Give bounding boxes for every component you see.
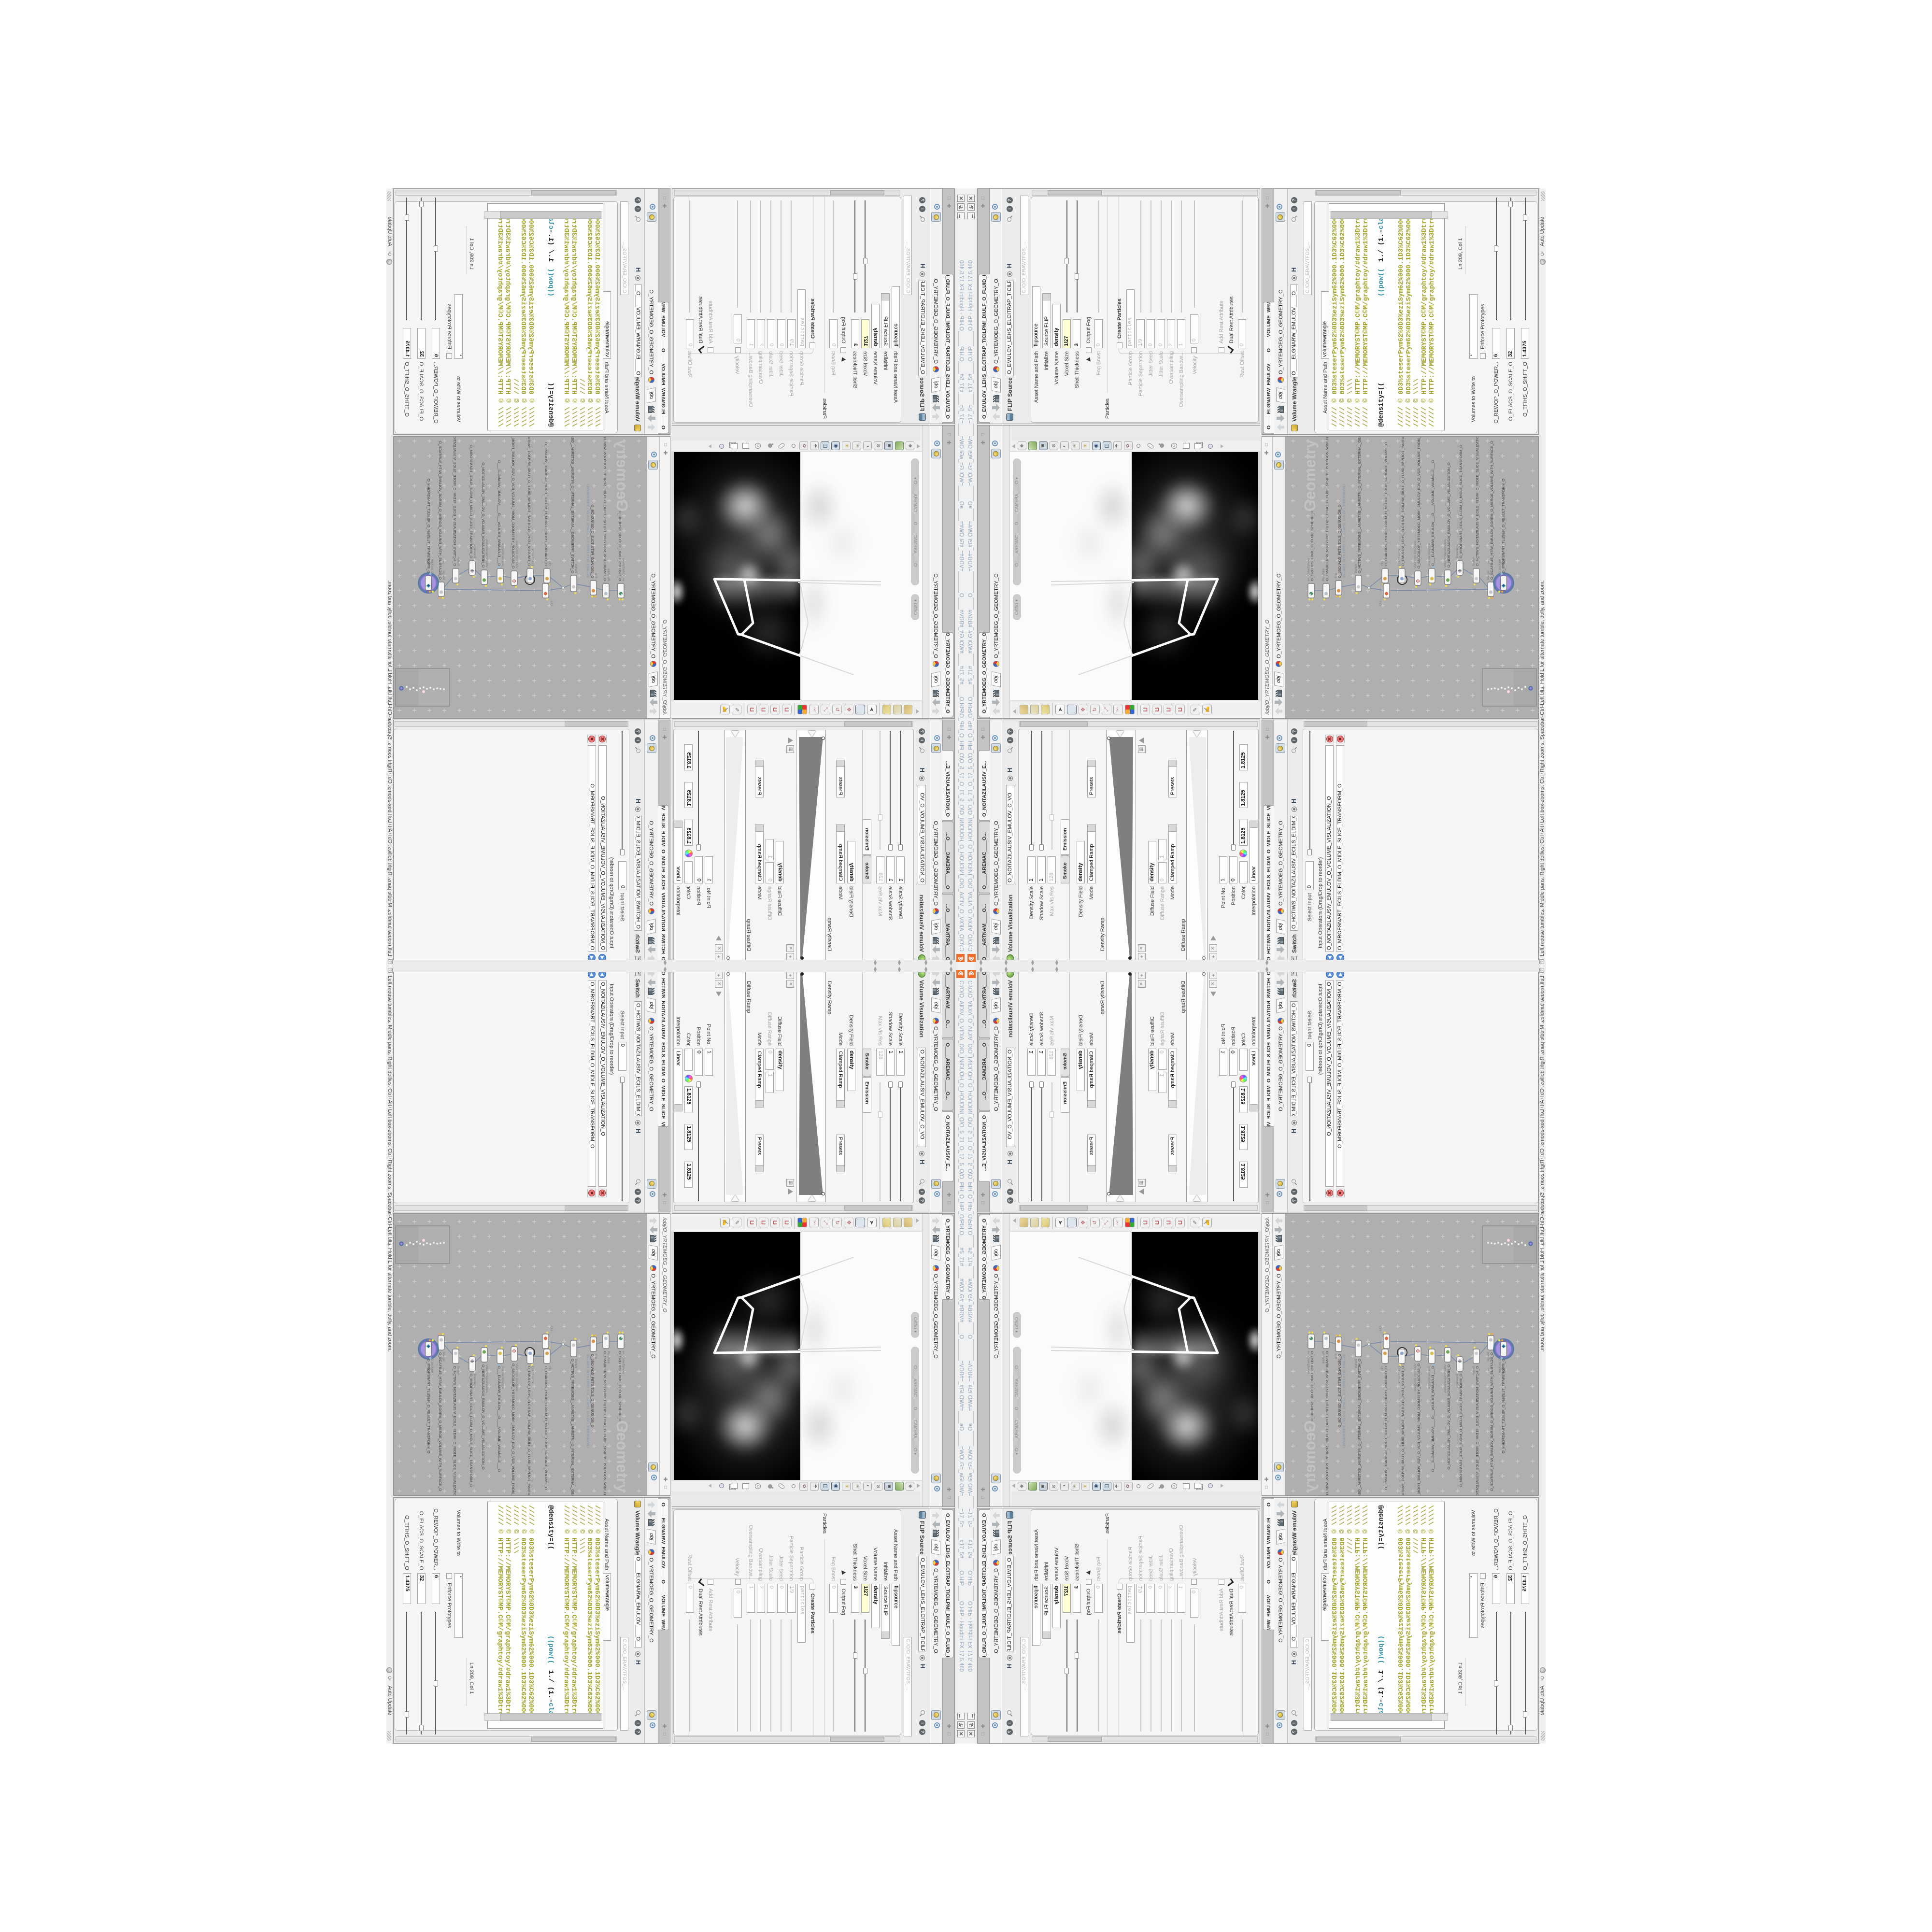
svg-text:O_EREHPS_EBUC_O_CUBE_SPHERE_O: O_EREHPS_EBUC_O_CUBE_SPHERE_O bbox=[1310, 1351, 1314, 1421]
svg-text:JBO.WD3_PETS.TRFOLS_O_GEM/SS_O: JBO.WD3_PETS.TRFOLS_O_GEM/SS_O.SLDPT.STE… bbox=[586, 484, 589, 579]
svg-text:O_JBO.WD3_PETS.TDLS_O_GENUS(OB: O_JBO.WD3_PETS.TDLS_O_GENUS(OB_D bbox=[590, 504, 595, 578]
svg-text:PolyWire: PolyWire bbox=[607, 568, 610, 581]
svg-text:O_SNOGILOP_YRTEMOEG_MORF_EMULO: O_SNOGILOP_YRTEMOEG_MORF_EMULOV_BDV_O_VD… bbox=[1417, 437, 1421, 568]
svg-text:Clip: Clip bbox=[1379, 600, 1382, 606]
svg-text:O_SNOGILOP_YRTEMOEG_MORF_EMULO: O_SNOGILOP_YRTEMOEG_MORF_EMULOV_BDV_O_VD… bbox=[511, 1364, 515, 1495]
svg-text:O_HCTIWS_NOITAZILAUSIV_ECILS_E: O_HCTIWS_NOITAZILAUSIV_ECILS_ELDIM_O_MID… bbox=[1475, 437, 1479, 566]
svg-text:Merge: Merge bbox=[442, 570, 445, 580]
svg-text:Transform: Transform bbox=[473, 544, 476, 558]
svg-text:O_ECAFRUS_HTIW_EMULOV_EGREM_O_: O_ECAFRUS_HTIW_EMULOV_EGREM_O_MERGE_VOLU… bbox=[1490, 1352, 1494, 1491]
svg-text:O_SNOGILOP_YRTEMOEG_MORF_EMULO: O_SNOGILOP_YRTEMOEG_MORF_EMULOV_BDV_O_VD… bbox=[511, 437, 515, 568]
svg-text:O_EMARFERIW_NOGYLOP_EREHPS_EBU: O_EMARFERIW_NOGYLOP_EREHPS_EBUC_O_CUBE_S… bbox=[1325, 1351, 1329, 1495]
svg-text:O_ECAFRUS_HTIW_EMULOV_EGREM_O_: O_ECAFRUS_HTIW_EMULOV_EGREM_O_MERGE_VOLU… bbox=[438, 1352, 442, 1491]
svg-text:Volume Wrangle: Volume Wrangle bbox=[501, 543, 504, 566]
svg-text:Clip: Clip bbox=[1379, 1326, 1382, 1332]
svg-text:Geometry: Geometry bbox=[1301, 440, 1319, 512]
svg-text:O_HCTIWS_YRTEMOEG_LANRETXE_LAN: O_HCTIWS_YRTEMOEG_LANRETXE_LANRETNI_O_IN… bbox=[1357, 1359, 1362, 1495]
svg-text:O_MROFSNART_ECILS_ELDIM_O_MIDL: O_MROFSNART_ECILS_ELDIM_O_MIDLE_SLICE_TR… bbox=[469, 445, 473, 558]
svg-text:O___ELGNARW_EMULOV___O____VOLU: O___ELGNARW_EMULOV___O____VOLUME_WRANGLE… bbox=[497, 1366, 501, 1472]
svg-text:O_HCTIWS_NOITAZILAUSIV_ECILS_E: O_HCTIWS_NOITAZILAUSIV_ECILS_ELDIM_O_MID… bbox=[453, 1366, 457, 1495]
svg-text:O_NOITAZILAUSIV_EMULOV_O_VOLUM: O_NOITAZILAUSIV_EMULOV_O_VOLUME_VISUALIZ… bbox=[1447, 1364, 1451, 1469]
svg-text:O_EREHPS_EBUC_O_CUBE_SPHERE_O: O_EREHPS_EBUC_O_CUBE_SPHERE_O bbox=[1310, 511, 1314, 581]
svg-text:Volume Wrangle: Volume Wrangle bbox=[501, 1366, 504, 1389]
svg-text:O_EMARFERIW_NOGYLOP_EREHPS_EBU: O_EMARFERIW_NOGYLOP_EREHPS_EBUC_O_CUBE_S… bbox=[603, 1351, 607, 1495]
svg-text:Clip: Clip bbox=[548, 1366, 551, 1372]
svg-text:Geometry: Geometry bbox=[1301, 1421, 1319, 1493]
svg-text:O_JBO.WD3_PETS.TDLS_O_GENUS(OB: O_JBO.WD3_PETS.TDLS_O_GENUS(OB_D bbox=[1337, 504, 1342, 578]
svg-text:VolumeVisualization: VolumeVisualization bbox=[485, 1364, 488, 1392]
svg-text:O_EMULOV_LEHS_ELCITRAP_TICILPM: O_EMULOV_LEHS_ELCITRAP_TICILPMI_DIULF_O_… bbox=[527, 437, 531, 566]
svg-text:VDB from Polygons: VDB from Polygons bbox=[515, 541, 518, 568]
svg-text:JBO.WD3_PETS.TRFOLS_O_GEM/SS_O: JBO.WD3_PETS.TRFOLS_O_GEM/SS_O.SLDPT.STE… bbox=[1343, 1353, 1346, 1448]
svg-text:O_HCTIWS_YRTEMOEG_LANRETXE_LAN: O_HCTIWS_YRTEMOEG_LANRETXE_LANRETNI_O_IN… bbox=[570, 437, 575, 573]
svg-text:O_EMARFERIW_NOGYLOP_EREHPS_EBU: O_EMARFERIW_NOGYLOP_EREHPS_EBUC_O_CUBE_S… bbox=[1325, 437, 1329, 581]
svg-text:O_ECAFRUS_PORD_EGREM_O_MERGE_D: O_ECAFRUS_PORD_EGREM_O_MERGE_DROP_SURFAC… bbox=[1384, 1366, 1388, 1490]
svg-text:JBO.WD3_PETS.TRFOLS_O_GEM/SS_O: JBO.WD3_PETS.TRFOLS_O_GEM/SS_O.SLDPT.STE… bbox=[1343, 484, 1346, 579]
svg-text:PolyWire: PolyWire bbox=[607, 1351, 610, 1364]
svg-text:Switch: Switch bbox=[456, 1366, 460, 1376]
svg-text:O_MROFSNART_TLUSER_O_RESULT_TR: O_MROFSNART_TLUSER_O_RESULT_TRANSFORM_O bbox=[1501, 479, 1506, 573]
svg-text:O_NOITAZILAUSIV_EMULOV_O_VOLUM: O_NOITAZILAUSIV_EMULOV_O_VOLUME_VISUALIZ… bbox=[481, 463, 485, 568]
svg-text:Switch: Switch bbox=[574, 564, 578, 573]
svg-text:Merge: Merge bbox=[442, 1352, 445, 1362]
svg-text:O_NOITAZILAUSIV_EMULOV_O_VOLUM: O_NOITAZILAUSIV_EMULOV_O_VOLUME_VISUALIZ… bbox=[1447, 463, 1451, 568]
svg-text:O_ECAFRUS_PORD_EGREM_O_MERGE_D: O_ECAFRUS_PORD_EGREM_O_MERGE_DROP_SURFAC… bbox=[544, 1366, 548, 1490]
svg-text:O_ECAFRUS_HTIW_EMULOV_EGREM_O_: O_ECAFRUS_HTIW_EMULOV_EGREM_O_MERGE_VOLU… bbox=[438, 441, 442, 580]
svg-text:an_CubeSphere: an_CubeSphere bbox=[622, 558, 625, 581]
svg-text:Geometry: Geometry bbox=[613, 1421, 631, 1493]
svg-text:O___ELGNARW_EMULOV___O____VOLU: O___ELGNARW_EMULOV___O____VOLUME_WRANGLE… bbox=[1431, 460, 1435, 566]
svg-text:O_HCTIWS_YRTEMOEG_LANRETXE_LAN: O_HCTIWS_YRTEMOEG_LANRETXE_LANRETNI_O_IN… bbox=[570, 1359, 575, 1495]
svg-text:O_ECAFRUS_HTIW_EMULOV_EGREM_O_: O_ECAFRUS_HTIW_EMULOV_EGREM_O_MERGE_VOLU… bbox=[1490, 441, 1494, 580]
svg-text:O_HCTIWS_YRTEMOEG_LANRETXE_LAN: O_HCTIWS_YRTEMOEG_LANRETXE_LANRETNI_O_IN… bbox=[1357, 437, 1362, 573]
svg-text:Clip: Clip bbox=[550, 1326, 553, 1332]
svg-text:Clip: Clip bbox=[550, 600, 553, 606]
svg-text:O_JBO.WD3_PETS.TDLS_O_GENUS(OB: O_JBO.WD3_PETS.TDLS_O_GENUS(OB_D bbox=[590, 1354, 595, 1428]
svg-text:VolumeVisualization: VolumeVisualization bbox=[485, 540, 488, 568]
svg-text:O_EMARFERIW_NOGYLOP_EREHPS_EBU: O_EMARFERIW_NOGYLOP_EREHPS_EBUC_O_CUBE_S… bbox=[603, 437, 607, 581]
svg-text:O_MROFSNART_TLUSER_O_RESULT_TR: O_MROFSNART_TLUSER_O_RESULT_TRANSFORM_O bbox=[426, 479, 431, 573]
svg-text:VDB from Polygons: VDB from Polygons bbox=[515, 1364, 518, 1391]
svg-text:O_NOITAZILAUSIV_EMULOV_O_VOLUM: O_NOITAZILAUSIV_EMULOV_O_VOLUME_VISUALIZ… bbox=[481, 1364, 485, 1469]
svg-text:Switch: Switch bbox=[574, 1359, 578, 1368]
svg-text:O_ECAFRUS_PORD_EGREM_O_MERGE_D: O_ECAFRUS_PORD_EGREM_O_MERGE_DROP_SURFAC… bbox=[544, 442, 548, 566]
svg-text:O_MROFSNART_ECILS_ELDIM_O_MIDL: O_MROFSNART_ECILS_ELDIM_O_MIDLE_SLICE_TR… bbox=[1459, 1374, 1463, 1487]
svg-text:O_HCTIWS_NOITAZILAUSIV_ECILS_E: O_HCTIWS_NOITAZILAUSIV_ECILS_ELDIM_O_MID… bbox=[453, 437, 457, 566]
svg-text:Clip: Clip bbox=[548, 560, 551, 566]
svg-text:FLIP Source: FLIP Source bbox=[531, 1366, 534, 1383]
svg-text:an_CubeSphere: an_CubeSphere bbox=[622, 1351, 625, 1374]
svg-text:O_EREHPS_EBUC_O_CUBE_SPHERE_O: O_EREHPS_EBUC_O_CUBE_SPHERE_O bbox=[618, 1351, 622, 1421]
svg-text:Geometry: Geometry bbox=[613, 440, 631, 512]
svg-text:O_EREHPS_EBUC_O_CUBE_SPHERE_O: O_EREHPS_EBUC_O_CUBE_SPHERE_O bbox=[618, 511, 622, 581]
svg-text:O_HCTIWS_NOITAZILAUSIV_ECILS_E: O_HCTIWS_NOITAZILAUSIV_ECILS_ELDIM_O_MID… bbox=[1475, 1366, 1479, 1495]
svg-text:Transform: Transform bbox=[430, 1359, 434, 1373]
svg-text:File: File bbox=[594, 573, 597, 578]
svg-text:O_MROFSNART_ECILS_ELDIM_O_MIDL: O_MROFSNART_ECILS_ELDIM_O_MIDLE_SLICE_TR… bbox=[1459, 445, 1463, 558]
svg-text:JBO.WD3_PETS.TRFOLS_O_GEM/SS_O: JBO.WD3_PETS.TRFOLS_O_GEM/SS_O.SLDPT.STE… bbox=[586, 1353, 589, 1448]
svg-text:Switch: Switch bbox=[456, 556, 460, 566]
svg-text:File: File bbox=[594, 1354, 597, 1359]
svg-text:Transform: Transform bbox=[473, 1374, 476, 1388]
svg-text:O_MROFSNART_TLUSER_O_RESULT_TR: O_MROFSNART_TLUSER_O_RESULT_TRANSFORM_O bbox=[426, 1359, 431, 1453]
svg-text:O_JBO.WD3_PETS.TDLS_O_GENUS(OB: O_JBO.WD3_PETS.TDLS_O_GENUS(OB_D bbox=[1337, 1354, 1342, 1428]
svg-text:O_MROFSNART_ECILS_ELDIM_O_MIDL: O_MROFSNART_ECILS_ELDIM_O_MIDLE_SLICE_TR… bbox=[469, 1374, 473, 1487]
svg-text:O_SNOGILOP_YRTEMOEG_MORF_EMULO: O_SNOGILOP_YRTEMOEG_MORF_EMULOV_BDV_O_VD… bbox=[1417, 1364, 1421, 1495]
svg-text:FLIP Source: FLIP Source bbox=[531, 549, 534, 566]
svg-text:O_EMULOV_LEHS_ELCITRAP_TICILPM: O_EMULOV_LEHS_ELCITRAP_TICILPMI_DIULF_O_… bbox=[1401, 1366, 1405, 1495]
svg-text:O_EMULOV_LEHS_ELCITRAP_TICILPM: O_EMULOV_LEHS_ELCITRAP_TICILPMI_DIULF_O_… bbox=[1401, 437, 1405, 566]
svg-text:O___ELGNARW_EMULOV___O____VOLU: O___ELGNARW_EMULOV___O____VOLUME_WRANGLE… bbox=[1431, 1366, 1435, 1472]
svg-text:O_ECAFRUS_PORD_EGREM_O_MERGE_D: O_ECAFRUS_PORD_EGREM_O_MERGE_DROP_SURFAC… bbox=[1384, 442, 1388, 566]
svg-text:O___ELGNARW_EMULOV___O____VOLU: O___ELGNARW_EMULOV___O____VOLUME_WRANGLE… bbox=[497, 460, 501, 566]
svg-text:Transform: Transform bbox=[430, 559, 434, 573]
svg-text:O_MROFSNART_TLUSER_O_RESULT_TR: O_MROFSNART_TLUSER_O_RESULT_TRANSFORM_O bbox=[1501, 1359, 1506, 1453]
svg-text:O_EMULOV_LEHS_ELCITRAP_TICILPM: O_EMULOV_LEHS_ELCITRAP_TICILPMI_DIULF_O_… bbox=[527, 1366, 531, 1495]
